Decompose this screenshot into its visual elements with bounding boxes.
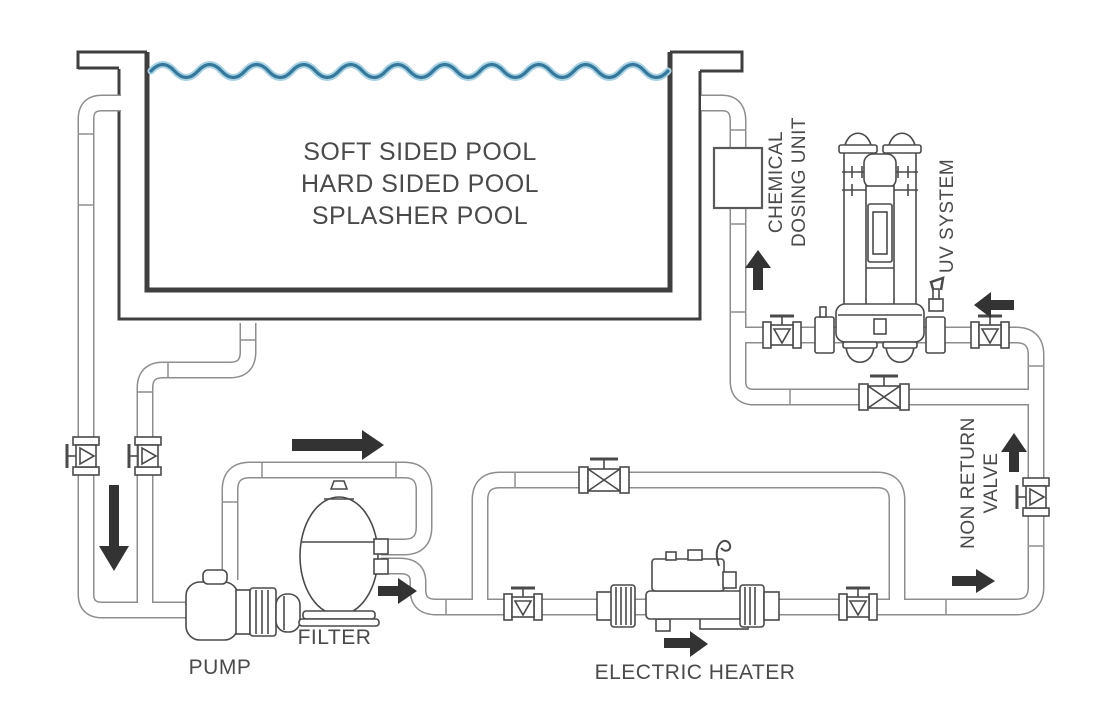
flow-arrow-down-icon — [99, 485, 129, 571]
isolation-valve-icon — [971, 316, 1009, 348]
non-return-valve-icon — [1017, 478, 1049, 516]
uv-system-graphic — [815, 133, 945, 362]
chemical-dosing-unit-graphic — [714, 148, 762, 208]
isolation-valve-icon — [67, 437, 99, 475]
pool-title: SOFT SIDED POOL HARD SIDED POOL SPLASHER… — [195, 136, 645, 232]
isolation-valve-icon — [839, 588, 877, 620]
pool-title-line: SPLASHER POOL — [195, 200, 645, 232]
filter-graphic — [299, 481, 388, 626]
gate-valve-icon — [859, 376, 909, 410]
diagram-canvas — [0, 0, 1100, 720]
flow-arrow-right-icon — [952, 569, 995, 593]
isolation-valve-icon — [504, 588, 542, 620]
pump-label: PUMP — [160, 656, 280, 680]
isolation-valve-icon — [763, 316, 801, 348]
flow-arrow-left-icon — [974, 292, 1014, 318]
pool-title-line: SOFT SIDED POOL — [195, 136, 645, 168]
electric-heater-graphic — [597, 541, 779, 631]
pool-plumbing-diagram: SOFT SIDED POOL HARD SIDED POOL SPLASHER… — [0, 0, 1100, 720]
flow-arrow-right-icon — [292, 430, 384, 460]
gate-valve-icon — [579, 459, 629, 493]
non-return-valve-label: NON RETURN VALVE — [957, 398, 1003, 568]
filter-label: FILTER — [272, 626, 397, 650]
isolation-valve-icon — [129, 437, 161, 475]
pool-title-line: HARD SIDED POOL — [195, 168, 645, 200]
flow-arrow-up-icon — [1001, 433, 1027, 472]
electric-heater-label: ELECTRIC HEATER — [565, 661, 825, 685]
water-surface-icon — [151, 65, 668, 78]
uv-system-label: UV SYSTEM — [936, 141, 960, 291]
chemical-dosing-unit-label: CHEMICAL DOSING UNIT — [765, 97, 813, 267]
flow-arrow-right-icon — [664, 631, 708, 657]
